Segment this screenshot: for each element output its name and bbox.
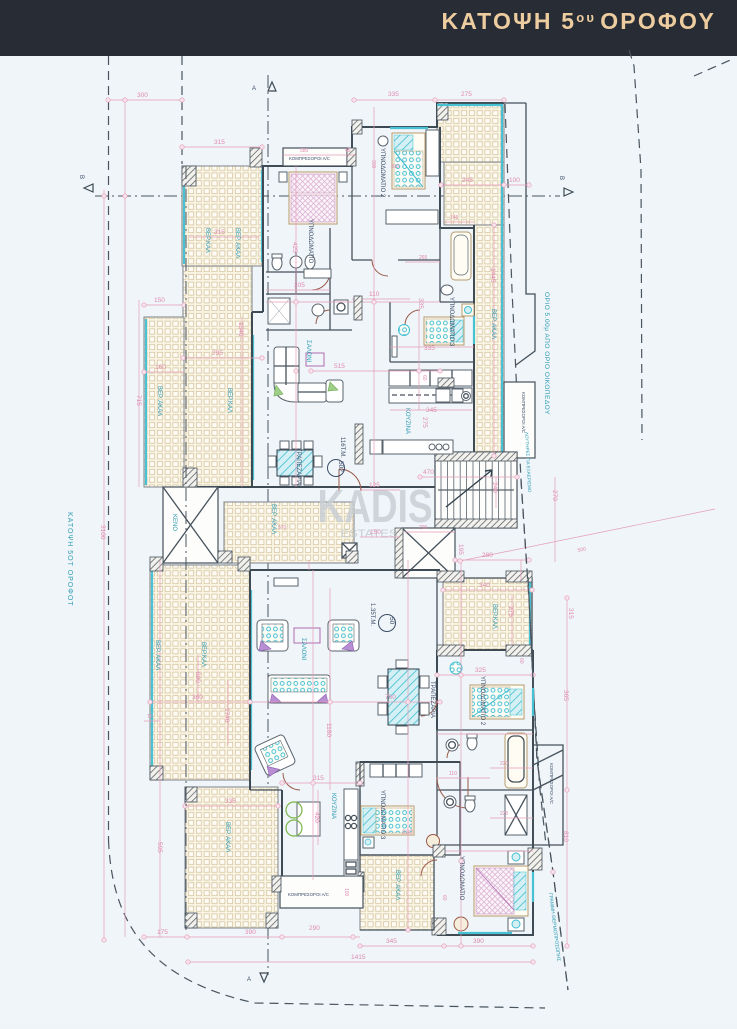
svg-text:205: 205	[294, 282, 305, 289]
svg-text:220: 220	[500, 761, 509, 767]
svg-text:100: 100	[343, 888, 349, 897]
svg-text:315: 315	[567, 608, 574, 619]
svg-text:116Τ.Μ.: 116Τ.Μ.	[339, 437, 345, 458]
svg-text:ΤΡΑΠΕΖΑΡΙΑ: ΤΡΑΠΕΖΑΡΙΑ	[429, 681, 435, 718]
svg-text:Α: Α	[247, 977, 251, 983]
svg-text:100: 100	[509, 177, 520, 184]
svg-text:ΥΠΝΟΔΩΜΑΤΙΟ 3: ΥΠΝΟΔΩΜΑΤΙΟ 3	[448, 297, 454, 347]
svg-text:515: 515	[334, 363, 345, 370]
svg-text:315: 315	[313, 775, 324, 782]
svg-text:50: 50	[388, 617, 395, 625]
svg-text:ΚΑΤΟΨΗ 5ΟΤ ΟΡΟΦΟΤ: ΚΑΤΟΨΗ 5ΟΤ ΟΡΟΦΟΤ	[66, 512, 73, 607]
svg-text:ΤΡΑΠΕΖΑΡΙΑ: ΤΡΑΠΕΖΑΡΙΑ	[295, 448, 301, 485]
svg-text:420: 420	[313, 812, 320, 823]
svg-text:595: 595	[156, 842, 163, 853]
svg-text:ΥΠΝΟΔΩΜΑΤΙΟ 2: ΥΠΝΟΔΩΜΑΤΙΟ 2	[479, 676, 485, 726]
svg-text:330: 330	[402, 829, 413, 836]
svg-text:335: 335	[417, 298, 424, 309]
svg-text:275: 275	[421, 417, 428, 428]
svg-text:60: 60	[441, 895, 447, 901]
svg-text:425: 425	[291, 242, 298, 253]
svg-text:280: 280	[482, 552, 493, 559]
svg-text:245: 245	[462, 177, 473, 184]
svg-text:ΚΕΝΟ: ΚΕΝΟ	[171, 514, 177, 531]
svg-text:760: 760	[385, 694, 396, 701]
svg-text:275: 275	[461, 91, 472, 98]
svg-text:365: 365	[562, 690, 569, 701]
svg-text:345: 345	[426, 407, 437, 414]
svg-text:570: 570	[278, 525, 287, 531]
svg-text:ΚΟΜΠΡΕΣΟΡΟΙ Α/C: ΚΟΜΠΡΕΣΟΡΟΙ Α/C	[289, 156, 330, 161]
svg-text:1415: 1415	[351, 954, 366, 961]
svg-text:310: 310	[391, 164, 400, 170]
svg-text:335: 335	[424, 345, 435, 352]
svg-text:335: 335	[225, 798, 236, 805]
svg-text:ΒΕΡ. ΑΚΑΛ: ΒΕΡ. ΑΚΑΛ	[490, 309, 496, 339]
svg-text:145: 145	[450, 215, 459, 221]
svg-text:315: 315	[214, 229, 225, 236]
svg-text:1740: 1740	[223, 708, 230, 723]
svg-text:70: 70	[147, 714, 153, 720]
svg-text:270: 270	[551, 490, 558, 501]
svg-text:325: 325	[475, 667, 486, 674]
svg-text:ΒΕΡ. ΑΚΑΛ: ΒΕΡ. ΑΚΑΛ	[394, 870, 400, 900]
svg-text:ΒΕΡ.ΚΑΛ: ΒΕΡ.ΚΑΛ	[204, 228, 210, 253]
svg-text:ΚΟΜΠΡΕΣΟΡΟΙ Α/C: ΚΟΜΠΡΕΣΟΡΟΙ Α/C	[521, 392, 526, 433]
svg-text:390: 390	[245, 929, 256, 936]
svg-text:ΣΑΛΟΝΙ: ΣΑΛΟΝΙ	[305, 340, 311, 363]
svg-text:800: 800	[194, 672, 201, 683]
svg-text:1180: 1180	[325, 723, 332, 737]
svg-text:470: 470	[423, 469, 434, 476]
svg-text:330: 330	[370, 160, 376, 169]
svg-text:ΒΕΡ. ΑΚΑΛ: ΒΕΡ. ΑΚΑΛ	[234, 228, 240, 258]
svg-text:200: 200	[419, 525, 428, 531]
svg-text:125: 125	[369, 482, 380, 489]
svg-text:220: 220	[500, 811, 509, 817]
svg-text:Α: Α	[252, 86, 256, 92]
svg-text:ΟΡΙΟ 5.00μ ΑΠΟ ΟΡΙΟ ΟΙΚΟΠΕΔΟΥ: ΟΡΙΟ 5.00μ ΑΠΟ ΟΡΙΟ ΟΙΚΟΠΕΔΟΥ	[543, 292, 550, 415]
svg-text:3100: 3100	[99, 525, 106, 540]
svg-text:300: 300	[137, 92, 148, 99]
svg-text:45: 45	[345, 148, 351, 154]
svg-text:390: 390	[473, 938, 484, 945]
svg-text:295: 295	[212, 350, 223, 357]
svg-text:ΒΕΡ.ΚΑΛ: ΒΕΡ.ΚΑΛ	[491, 604, 497, 629]
svg-text:110: 110	[449, 771, 457, 777]
svg-text:ΒΕΡ.ΚΑΛ: ΒΕΡ.ΚΑΛ	[226, 388, 232, 413]
svg-text:Β: Β	[558, 176, 564, 180]
svg-text:Β: Β	[78, 175, 84, 179]
svg-text:ΥΠΝΟΔΩΜΑΤΙΟ 3: ΥΠΝΟΔΩΜΑΤΙΟ 3	[379, 790, 385, 840]
svg-text:150: 150	[154, 297, 165, 304]
svg-text:150: 150	[370, 529, 381, 536]
svg-text:160: 160	[155, 364, 166, 371]
svg-text:810: 810	[562, 831, 569, 842]
svg-text:ΒΕΡ.ΚΑΛ: ΒΕΡ.ΚΑΛ	[200, 642, 206, 667]
svg-text:275: 275	[507, 606, 514, 617]
svg-text:335: 335	[388, 91, 399, 98]
svg-text:360: 360	[192, 694, 203, 701]
svg-text:ΚΟΜΠΡΕΣΟΡΟΙ Α/C: ΚΟΜΠΡΕΣΟΡΟΙ Α/C	[549, 763, 554, 804]
svg-text:345: 345	[386, 938, 397, 945]
svg-text:ΚΟΥΖΙΝΑ: ΚΟΥΖΙΝΑ	[330, 793, 336, 819]
svg-text:ΒΕΡ. ΑΚΑΛ: ΒΕΡ. ΑΚΑΛ	[224, 822, 230, 852]
svg-text:195: 195	[457, 544, 464, 555]
svg-text:60: 60	[421, 375, 427, 381]
svg-text:ESTATES: ESTATES	[341, 528, 398, 540]
svg-text:1.35Τ.Μ.: 1.35Τ.Μ.	[369, 603, 375, 626]
svg-text:502: 502	[337, 461, 344, 472]
svg-text:290: 290	[309, 925, 320, 932]
svg-text:ΣΑΛΟΝΙ: ΣΑΛΟΝΙ	[300, 638, 306, 661]
svg-text:ΚΟΜΠΡΕΣΟΡΟΙ Α/C: ΚΟΜΠΡΕΣΟΡΟΙ Α/C	[288, 892, 329, 897]
svg-text:1340: 1340	[237, 322, 244, 337]
svg-text:ΒΕΡ. ΑΚΑΛ: ΒΕΡ. ΑΚΑΛ	[154, 640, 160, 670]
svg-text:110: 110	[369, 291, 380, 298]
svg-text:175: 175	[157, 929, 168, 936]
svg-text:715: 715	[135, 395, 142, 406]
svg-text:ΒΕΡ. ΑΚΑΛ: ΒΕΡ. ΑΚΑΛ	[270, 504, 276, 534]
svg-text:340: 340	[479, 582, 490, 589]
svg-text:ΥΠΝΟΔΩΜΑΤΙΟ: ΥΠΝΟΔΩΜΑΤΙΟ	[307, 219, 313, 264]
svg-text:240: 240	[491, 482, 498, 493]
svg-text:ΚΟΥΖΙΝΑ: ΚΟΥΖΙΝΑ	[404, 408, 410, 434]
svg-text:580: 580	[300, 148, 309, 154]
svg-text:60: 60	[518, 658, 524, 664]
svg-text:1445: 1445	[489, 268, 496, 283]
svg-text:265: 265	[419, 255, 428, 261]
svg-text:ΥΠΝΟΔΩΜΑΤΙΟ 2: ΥΠΝΟΔΩΜΑΤΙΟ 2	[379, 148, 385, 198]
svg-text:ΒΕΡ. ΑΚΑΛ: ΒΕΡ. ΑΚΑΛ	[156, 386, 162, 416]
svg-text:315: 315	[214, 139, 225, 146]
